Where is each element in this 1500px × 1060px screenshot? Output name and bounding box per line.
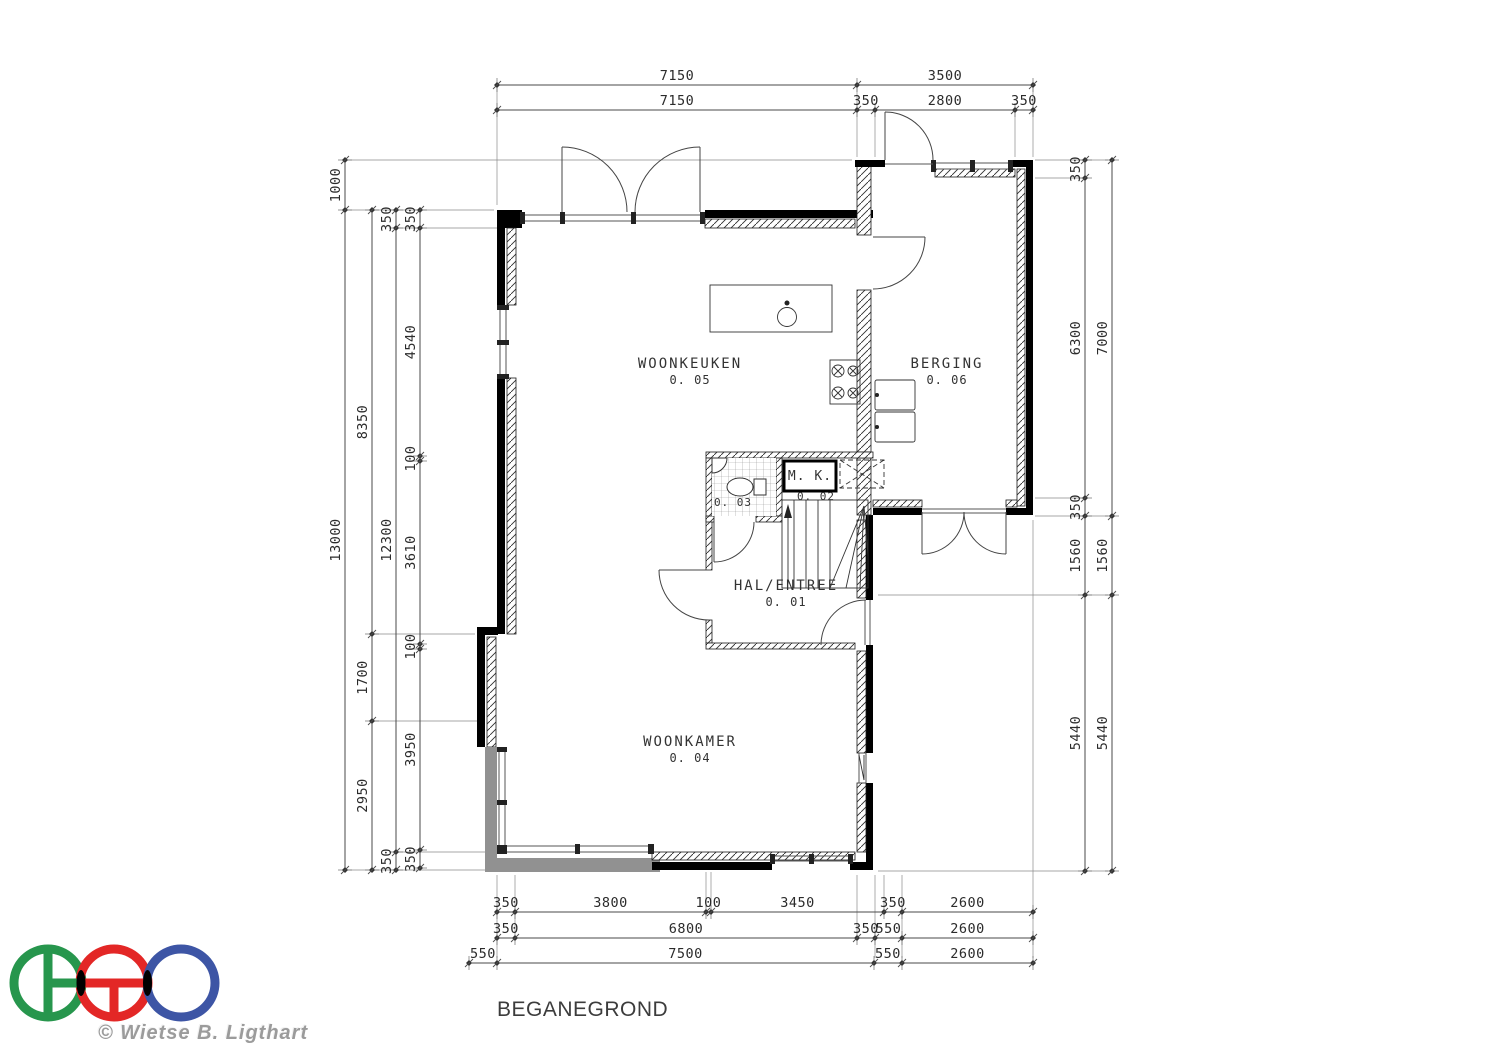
room-name: BERGING (910, 356, 983, 372)
dimension-label: 550 (876, 921, 902, 937)
dimension-label: 2600 (950, 946, 985, 962)
drawing-title: BEGANEGROND (497, 998, 668, 1022)
dimension-label: 4540 (403, 325, 419, 360)
front-door (821, 600, 866, 645)
toilet-cistern (754, 479, 766, 495)
dimension-label: 13000 (328, 518, 344, 561)
room-number: 0. 05 (669, 373, 710, 387)
toilet-number: 0. 03 (714, 496, 752, 509)
dimension-label: 350 (493, 895, 519, 911)
dimension-label: 1700 (355, 660, 371, 695)
dimension-label: 2600 (950, 921, 985, 937)
dimension-label: 7150 (660, 68, 695, 84)
kitchen-fixtures (710, 285, 860, 404)
stairs (782, 500, 868, 588)
dimension-label: 3800 (593, 895, 628, 911)
room-name: WOONKAMER (643, 734, 737, 750)
dimension-label: 1560 (1068, 538, 1084, 573)
dimension-label: 350 (403, 206, 419, 232)
cooktop (830, 360, 860, 404)
dimension-label: 3450 (780, 895, 815, 911)
logo-overlap-right (143, 970, 152, 996)
meter-closet-label: M. K. (788, 469, 832, 484)
dimension-label: 100 (403, 634, 419, 660)
toilet-door (714, 522, 754, 562)
dimension-label: 6800 (669, 921, 704, 937)
dimension-label: 3610 (403, 535, 419, 570)
company-logo (14, 949, 215, 1017)
dimension-label: 100 (696, 895, 722, 911)
dimension-label: 550 (470, 946, 496, 962)
dimension-label: 7500 (668, 946, 703, 962)
page: M. K. 0. 02 7150350071503502800350350380… (0, 0, 1500, 1060)
dimension-label: 350 (853, 93, 879, 109)
room-name: WOONKEUKEN (638, 356, 742, 372)
stair-arrow (784, 504, 792, 518)
dimension-label: 2600 (950, 895, 985, 911)
kitchen-counter (710, 285, 832, 332)
dimension-label: 5440 (1095, 716, 1111, 751)
kitchen-sink (778, 308, 797, 327)
dimension-label: 350 (379, 848, 395, 874)
logo-overlap-left (77, 970, 86, 996)
dimension-label: 350 (1068, 494, 1084, 520)
dimension-layer: 7150350071503502800350350380010034503502… (328, 68, 1119, 970)
copyright-text: © Wietse B. Ligthart (98, 1022, 308, 1045)
dimension-label: 350 (1068, 156, 1084, 182)
dimension-label: 350 (493, 921, 519, 937)
dimension-label: 8350 (355, 405, 371, 440)
dimension-label: 2800 (928, 93, 963, 109)
louvre-symbol (859, 755, 864, 780)
dimension-label: 550 (875, 946, 901, 962)
dimension-label: 350 (403, 846, 419, 872)
meter-closet-number: 0. 02 (797, 490, 835, 503)
terrace-band (485, 747, 497, 872)
terrace-band (485, 858, 660, 872)
dimension-label: 1000 (328, 168, 344, 203)
room-label-layer: WOONKEUKEN0. 05BERGING0. 06HAL/ENTREE0. … (638, 356, 984, 765)
dimension-label: 350 (1011, 93, 1037, 109)
meter-closet: M. K. 0. 02 (784, 461, 836, 503)
french-doors (562, 147, 700, 212)
berging-exterior-door (885, 112, 933, 160)
dimension-label: 7150 (660, 93, 695, 109)
dimension-label: 12300 (379, 518, 395, 561)
dimension-label: 6300 (1068, 321, 1084, 356)
hall-to-kitchen-door (659, 570, 709, 620)
berging-double-doors (922, 512, 1006, 554)
floor-plan-drawing: M. K. 0. 02 7150350071503502800350350380… (0, 0, 1500, 1060)
dimension-label: 3950 (403, 732, 419, 767)
room-number: 0. 01 (765, 595, 806, 609)
dimension-label: 7000 (1095, 321, 1111, 356)
kitchen-to-berging-door (873, 237, 925, 289)
dimension-label: 2950 (355, 778, 371, 813)
dimension-label: 5440 (1068, 716, 1084, 751)
faucet-dot (785, 301, 790, 306)
dimension-label: 3500 (928, 68, 963, 84)
room-number: 0. 04 (669, 751, 710, 765)
berging-appliances (875, 380, 915, 442)
logo-blue-ring (147, 949, 215, 1017)
dimension-label: 100 (403, 446, 419, 472)
room-name: HAL/ENTREE (734, 578, 838, 594)
toilet-bowl (727, 478, 753, 496)
dimension-label: 350 (880, 895, 906, 911)
room-number: 0. 06 (926, 373, 967, 387)
dimension-label: 1560 (1095, 538, 1111, 573)
dimension-label: 350 (379, 206, 395, 232)
